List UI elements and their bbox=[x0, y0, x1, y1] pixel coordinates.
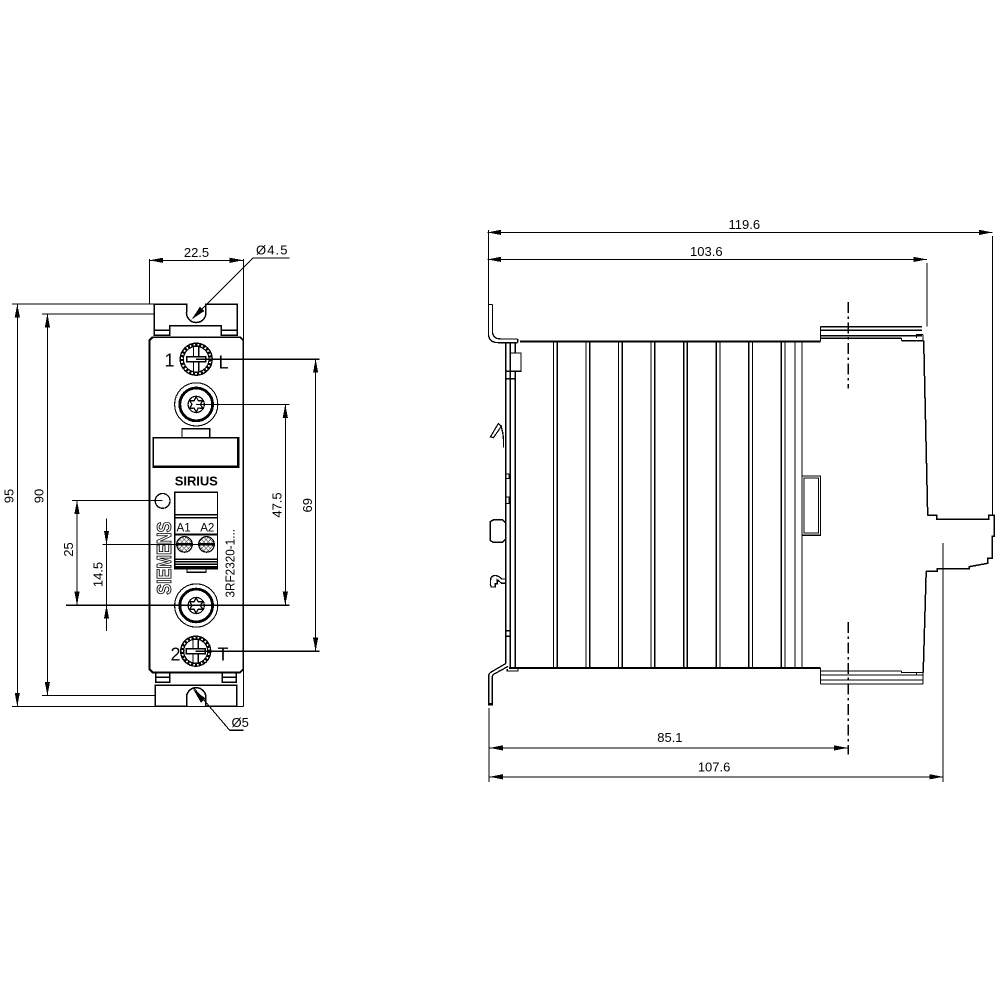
svg-text:69: 69 bbox=[300, 498, 315, 512]
svg-text:119.6: 119.6 bbox=[729, 217, 761, 232]
svg-text:SIEMENS: SIEMENS bbox=[154, 522, 176, 595]
svg-text:3RF2320-1...: 3RF2320-1... bbox=[224, 529, 238, 598]
svg-text:25: 25 bbox=[61, 542, 76, 556]
svg-text:2: 2 bbox=[171, 645, 181, 665]
svg-text:T: T bbox=[218, 645, 229, 665]
svg-text:22.5: 22.5 bbox=[184, 245, 209, 260]
svg-text:95: 95 bbox=[2, 489, 17, 503]
svg-text:A1: A1 bbox=[177, 522, 191, 535]
svg-text:A2: A2 bbox=[200, 522, 214, 535]
svg-text:1: 1 bbox=[165, 351, 175, 371]
svg-text:SIRIUS: SIRIUS bbox=[175, 474, 218, 489]
svg-text:Ø5: Ø5 bbox=[232, 715, 249, 730]
svg-text:107.6: 107.6 bbox=[698, 760, 731, 775]
svg-text:47.5: 47.5 bbox=[270, 492, 285, 517]
svg-text:Ø4.5: Ø4.5 bbox=[256, 243, 289, 258]
svg-text:14.5: 14.5 bbox=[91, 562, 106, 587]
svg-text:103.6: 103.6 bbox=[690, 244, 723, 259]
svg-text:85.1: 85.1 bbox=[657, 730, 682, 745]
svg-text:90: 90 bbox=[32, 489, 47, 503]
svg-text:L: L bbox=[219, 353, 229, 373]
